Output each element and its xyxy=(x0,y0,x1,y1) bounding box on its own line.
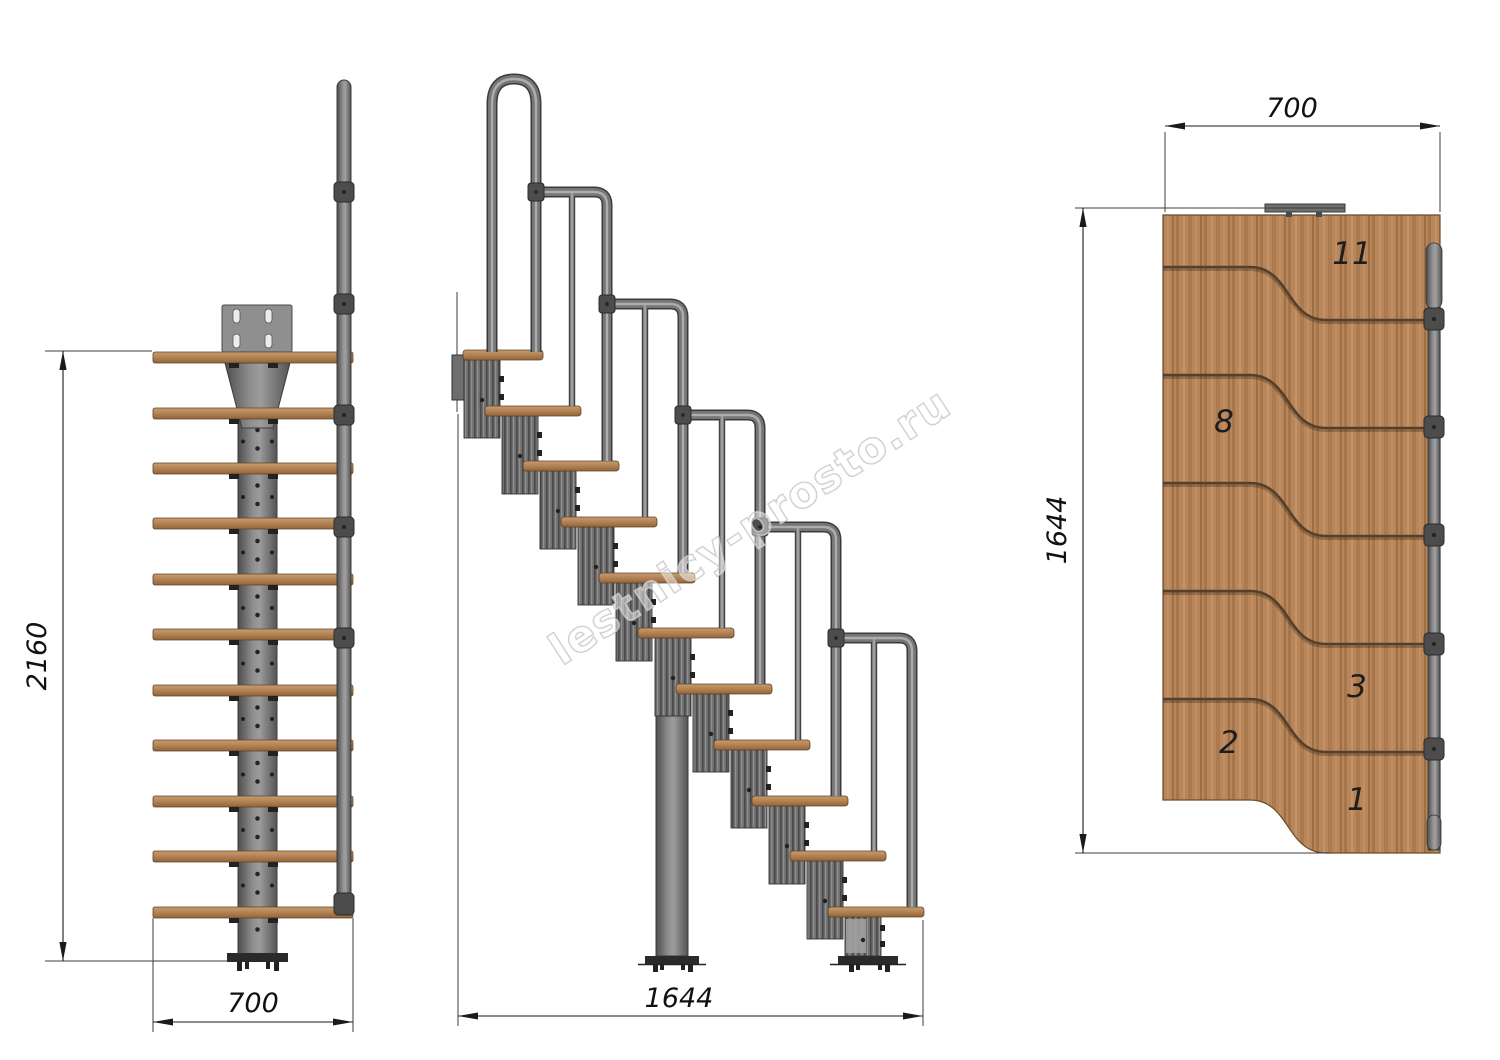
dimension-plan-width: 700 xyxy=(1165,93,1440,212)
dim-label-2160: 2160 xyxy=(22,622,53,691)
bottom-base-plate xyxy=(830,956,906,972)
handrail-post-front xyxy=(334,80,354,915)
staircase-drawing: 2160 xyxy=(0,0,1500,1060)
tread-number: 2 xyxy=(1219,725,1239,761)
dim-label-700-plan: 700 xyxy=(1266,93,1318,124)
front-view: 2160 xyxy=(22,80,354,1032)
dim-label-1644-side: 1644 xyxy=(645,983,714,1014)
top-mounting-plate xyxy=(222,305,292,352)
dim-label-700-front: 700 xyxy=(227,988,279,1019)
tread-number: 11 xyxy=(1332,236,1371,272)
wall-bracket xyxy=(452,355,464,400)
tread-number: 8 xyxy=(1214,404,1234,440)
tread-number: 3 xyxy=(1347,669,1367,705)
base-plate xyxy=(227,953,288,971)
technical-drawing-page: 2160 xyxy=(0,0,1500,1060)
dimension-height: 2160 xyxy=(22,351,228,961)
dim-label-1644-plan: 1644 xyxy=(1042,496,1073,565)
tread-number: 1 xyxy=(1347,782,1367,818)
plan-view: 11 8 3 2 1 700 xyxy=(1042,93,1444,853)
